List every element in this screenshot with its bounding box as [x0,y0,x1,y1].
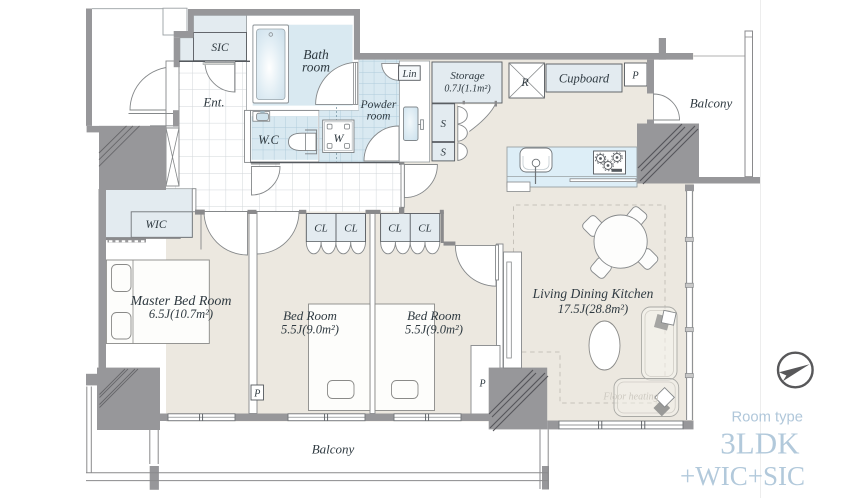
svg-text:P: P [253,389,260,400]
svg-text:CL: CL [314,223,327,235]
svg-text:S: S [441,147,447,159]
svg-text:Bed Room: Bed Room [283,308,337,323]
svg-text:6.5J(10.7m²): 6.5J(10.7m²) [149,307,213,321]
svg-text:0.7J(1.1m²): 0.7J(1.1m²) [444,84,491,95]
svg-text:Powder: Powder [360,99,397,111]
svg-text:5.5J(9.0m²): 5.5J(9.0m²) [281,323,339,337]
svg-text:W: W [334,131,345,145]
svg-text:WIC: WIC [145,219,166,231]
svg-text:P: P [631,71,639,82]
svg-text:Balcony: Balcony [690,96,733,111]
svg-text:CL: CL [344,223,357,235]
svg-text:Balcony: Balcony [312,442,355,457]
svg-text:Living Dining Kitchen: Living Dining Kitchen [532,286,654,301]
svg-text:Room type: Room type [731,410,803,426]
svg-text:Storage: Storage [450,70,484,82]
svg-text:W.C: W.C [258,133,279,147]
svg-text:room: room [367,111,391,123]
svg-text:SIC: SIC [211,42,229,54]
svg-text:+WIC+SIC: +WIC+SIC [680,461,805,491]
svg-text:Cupboard: Cupboard [559,72,610,86]
svg-text:S: S [441,118,447,130]
svg-text:CL: CL [418,223,431,235]
svg-text:Lin: Lin [401,69,416,80]
svg-text:P: P [478,379,485,390]
svg-text:CL: CL [388,223,401,235]
svg-text:Floor heating: Floor heating [602,392,658,403]
svg-text:3LDK: 3LDK [720,426,800,461]
svg-text:Bed Room: Bed Room [407,308,461,323]
svg-text:Ent.: Ent. [202,95,224,110]
svg-text:17.5J(28.8m²): 17.5J(28.8m²) [558,302,628,316]
svg-text:room: room [302,60,330,75]
svg-text:5.5J(9.0m²): 5.5J(9.0m²) [405,323,463,337]
svg-text:R: R [520,75,529,89]
